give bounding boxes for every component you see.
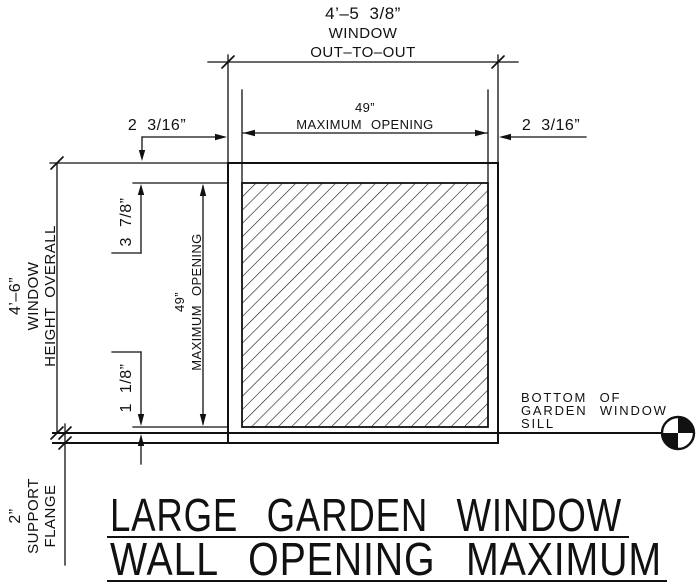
- drawing-sheet: 4’–5 3/8” WINDOW OUT–TO–OUT 49” MAXIMUM …: [0, 0, 700, 583]
- wall-opening-hatch: [242, 183, 488, 427]
- top-inset-value: 3 7/8”: [118, 198, 135, 247]
- bottom-inset-value: 1 1/8”: [118, 364, 135, 413]
- dim-opening-width: 49” MAXIMUM OPENING: [242, 90, 488, 183]
- garden-window-drawing: 4’–5 3/8” WINDOW OUT–TO–OUT 49” MAXIMUM …: [0, 0, 700, 583]
- support-flange-label-2: FLANGE: [42, 484, 59, 547]
- dim-left-offset: 2 3/16”: [128, 117, 227, 161]
- sill-note: BOTTOM OF GARDEN WINDOW SILL: [521, 390, 668, 431]
- dim-support-flange: 2” SUPPORT FLANGE: [7, 424, 71, 565]
- sill-note-line-3: SILL: [521, 416, 555, 431]
- title-line-2: WALL OPENING MAXIMUM: [110, 533, 662, 583]
- opening-width-value: 49”: [355, 100, 375, 115]
- opening-height-label: MAXIMUM OPENING: [189, 233, 204, 370]
- dim-out-to-out: 4’–5 3/8” WINDOW OUT–TO–OUT: [208, 4, 518, 163]
- drawing-title: LARGE GARDEN WINDOW WALL OPENING MAXIMUM: [108, 489, 666, 583]
- dim-bottom-inset: 1 1/8”: [112, 352, 228, 464]
- height-overall-label-1: WINDOW: [25, 261, 42, 330]
- out-to-out-value: 4’–5 3/8”: [325, 4, 401, 23]
- out-to-out-label-1: WINDOW: [329, 25, 398, 42]
- height-overall-label-2: HEIGHT OVERALL: [42, 225, 59, 367]
- dim-top-inset: 3 7/8”: [112, 183, 228, 253]
- opening-height-value: 49”: [172, 292, 187, 312]
- datum-target-icon: [662, 417, 694, 449]
- opening-width-label: MAXIMUM OPENING: [296, 117, 433, 132]
- out-to-out-label-2: OUT–TO–OUT: [310, 44, 416, 61]
- dim-height-overall: 4’–6” WINDOW HEIGHT OVERALL: [7, 157, 63, 439]
- height-overall-value: 4’–6”: [7, 277, 24, 315]
- support-flange-value: 2”: [7, 508, 24, 523]
- left-offset-value: 2 3/16”: [128, 117, 186, 134]
- dim-right-offset: 2 3/16”: [499, 117, 586, 140]
- right-offset-value: 2 3/16”: [522, 117, 580, 134]
- support-flange-label-1: SUPPORT: [25, 478, 42, 554]
- dim-opening-height: 49” MAXIMUM OPENING: [172, 184, 206, 426]
